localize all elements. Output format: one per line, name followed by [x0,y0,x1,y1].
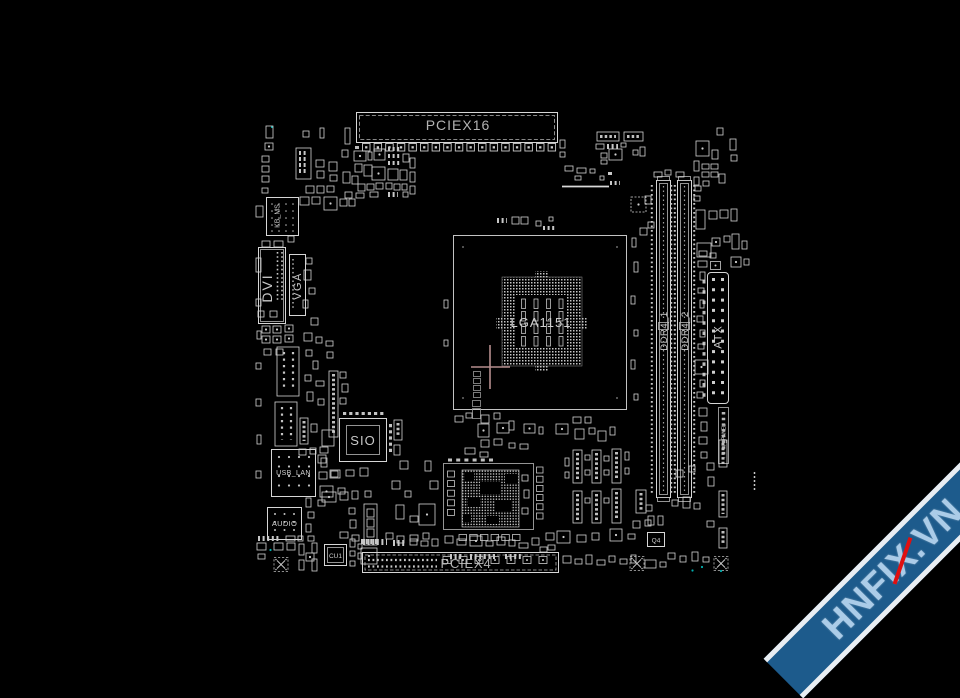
atx-connector: ATX [708,273,729,404]
vga-label: VGA [292,272,304,300]
boardview-stage: PCIEX16 LGA1151 DDR4_1 [0,0,960,639]
dimm-slot-ddr4-2: DDR4_2 [678,177,692,502]
atx-label: ATX [713,325,725,349]
q4-chip: Q4 [648,533,665,547]
cu1-label: CU1 [329,553,342,560]
sio-label: SIO [350,433,375,448]
dvi-connector: DVI [259,248,286,324]
pch-bga-chip [444,464,534,530]
dimm-slot-ddr4-1: DDR4_1 [657,177,671,502]
ddr4-1-label: DDR4_1 [659,311,670,350]
boardview-canvas: PCIEX16 LGA1151 DDR4_1 [0,0,960,639]
ddr4-2-label: DDR4_2 [680,311,691,350]
dvi-label: DVI [259,273,275,302]
kb-ms-connector: KB_MS [267,198,299,236]
audio-label: AUDIO [272,519,297,528]
kb-ms-label: KB_MS [275,204,282,228]
audio-connector: AUDIO [268,508,302,540]
sio-chip: SIO [340,419,387,462]
cpu-socket-label: LGA1151 [511,315,572,330]
usb-lan-label: USB_LAN [276,470,311,477]
pciex16-slot: PCIEX16 [357,113,558,143]
cu1-chip: CU1 [325,545,347,566]
pciex16-label: PCIEX16 [426,117,491,133]
q4-label: Q4 [652,538,661,545]
